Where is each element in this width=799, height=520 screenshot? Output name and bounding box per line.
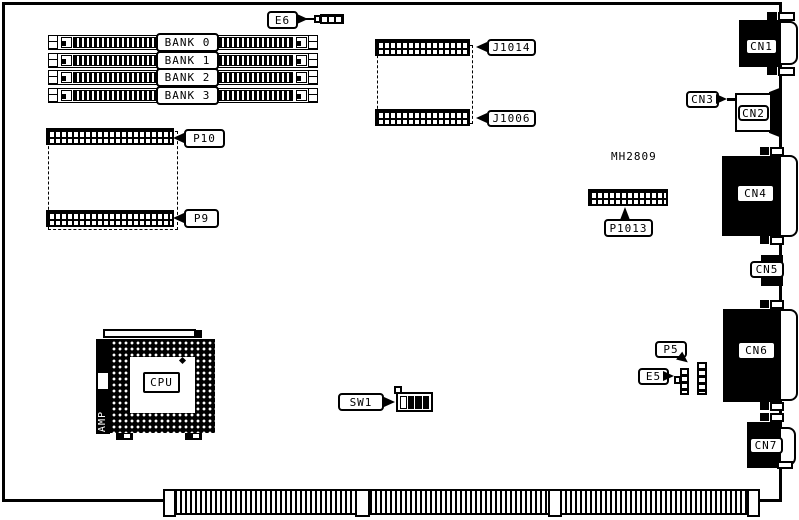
- edge-connector-notch: [747, 489, 760, 517]
- p9-label: P9: [184, 209, 219, 228]
- sw1-label: SW1: [338, 393, 384, 411]
- p10-header: [46, 128, 174, 145]
- cn3-pointer-icon: [716, 94, 727, 104]
- simm-end-cap: [308, 54, 317, 67]
- cn4-tab: [760, 236, 769, 244]
- cn1-tab-outline: [778, 67, 795, 76]
- simm-end-cap: [308, 36, 317, 49]
- simm-end-cap: [49, 54, 58, 67]
- simm-end-cap: [308, 89, 317, 102]
- cn7-tab-outline: [770, 413, 784, 422]
- cn7-tab: [748, 460, 778, 466]
- sw1-dip-switch: [396, 392, 433, 412]
- amp-socket-bar: AMP: [96, 339, 110, 434]
- simm-latch-icon: [293, 54, 308, 67]
- simm-latch-icon: [293, 36, 308, 49]
- e6-pointer-icon: [297, 14, 308, 24]
- cn7-tab-outline: [777, 461, 793, 469]
- cn2-label: CN2: [738, 105, 769, 121]
- cn1-tab: [767, 67, 777, 75]
- p5-jumper-block: [697, 362, 707, 395]
- simm-end-cap: [49, 71, 58, 84]
- cpu-top-bar-end: [194, 330, 202, 338]
- cn3-label: CN3: [686, 91, 719, 108]
- j1006-label: J1006: [487, 110, 536, 127]
- socket-foot: [185, 433, 202, 440]
- cn5-label: CN5: [750, 261, 784, 278]
- simm-end-cap: [49, 36, 58, 49]
- cn6-label: CN6: [737, 341, 776, 360]
- cn6-tab: [760, 300, 769, 308]
- p9-pointer-icon: [173, 213, 184, 223]
- mh2809-text: MH2809: [611, 150, 657, 163]
- simm-end-cap: [49, 89, 58, 102]
- cn4-bracket: [779, 155, 798, 237]
- sw1-pointer-icon: [384, 397, 395, 407]
- socket-foot: [116, 433, 133, 440]
- isa-edge-connector: [163, 489, 758, 515]
- simm-latch-icon: [58, 36, 73, 49]
- simm-latch-icon: [58, 71, 73, 84]
- p9-header: [46, 210, 174, 227]
- cn6-tab: [760, 402, 769, 410]
- cn7-tab: [760, 413, 769, 421]
- e6-label: E6: [267, 11, 298, 29]
- cn1-label: CN1: [745, 38, 778, 55]
- j1006-pointer-icon: [476, 113, 487, 123]
- bank3-label: BANK 3: [156, 86, 219, 105]
- amp-brand-text: AMP: [97, 411, 108, 432]
- p10-pointer-icon: [173, 133, 184, 143]
- cn1-bracket: [779, 21, 798, 65]
- simm-latch-icon: [58, 89, 73, 102]
- bank0-label: BANK 0: [156, 33, 219, 52]
- cpu-label: CPU: [143, 372, 180, 393]
- edge-connector-notch: [548, 489, 562, 517]
- cn1-tab: [767, 12, 777, 20]
- amp-bar-notch: [98, 373, 108, 389]
- cn4-tab: [760, 147, 769, 155]
- cn1-tab-outline: [778, 12, 795, 21]
- cn6-tab-outline: [770, 300, 784, 309]
- cn4-tab-outline: [770, 147, 784, 156]
- simm-end-cap: [308, 71, 317, 84]
- motherboard-diagram: BANK 0 BANK 1 BANK 2 BANK 3 E6 J1014 J10…: [0, 0, 799, 520]
- cn4-label: CN4: [736, 184, 775, 203]
- j1014-header: [375, 39, 470, 56]
- j1014-label: J1014: [487, 39, 536, 56]
- e6-jumper-block: [320, 14, 344, 24]
- j1014-pointer-icon: [476, 42, 487, 52]
- p1013-label: P1013: [604, 219, 653, 237]
- e5-jumper-block: [680, 368, 689, 395]
- p10-label: P10: [184, 129, 225, 148]
- simm-latch-icon: [293, 89, 308, 102]
- e5-pointer-icon: [663, 371, 674, 381]
- edge-connector-notch: [355, 489, 370, 517]
- simm-latch-icon: [293, 71, 308, 84]
- bank2-label: BANK 2: [156, 68, 219, 87]
- cpu-top-bar: [103, 329, 196, 338]
- cn6-tab-outline: [770, 402, 784, 411]
- cn7-label: CN7: [749, 437, 783, 454]
- edge-connector-notch: [163, 489, 176, 517]
- p1013-header: [588, 189, 668, 206]
- cn4-tab-outline: [770, 236, 784, 245]
- j1006-header: [375, 109, 470, 126]
- p1013-pointer-icon: [620, 207, 630, 220]
- cn6-bracket: [779, 309, 798, 401]
- simm-latch-icon: [58, 54, 73, 67]
